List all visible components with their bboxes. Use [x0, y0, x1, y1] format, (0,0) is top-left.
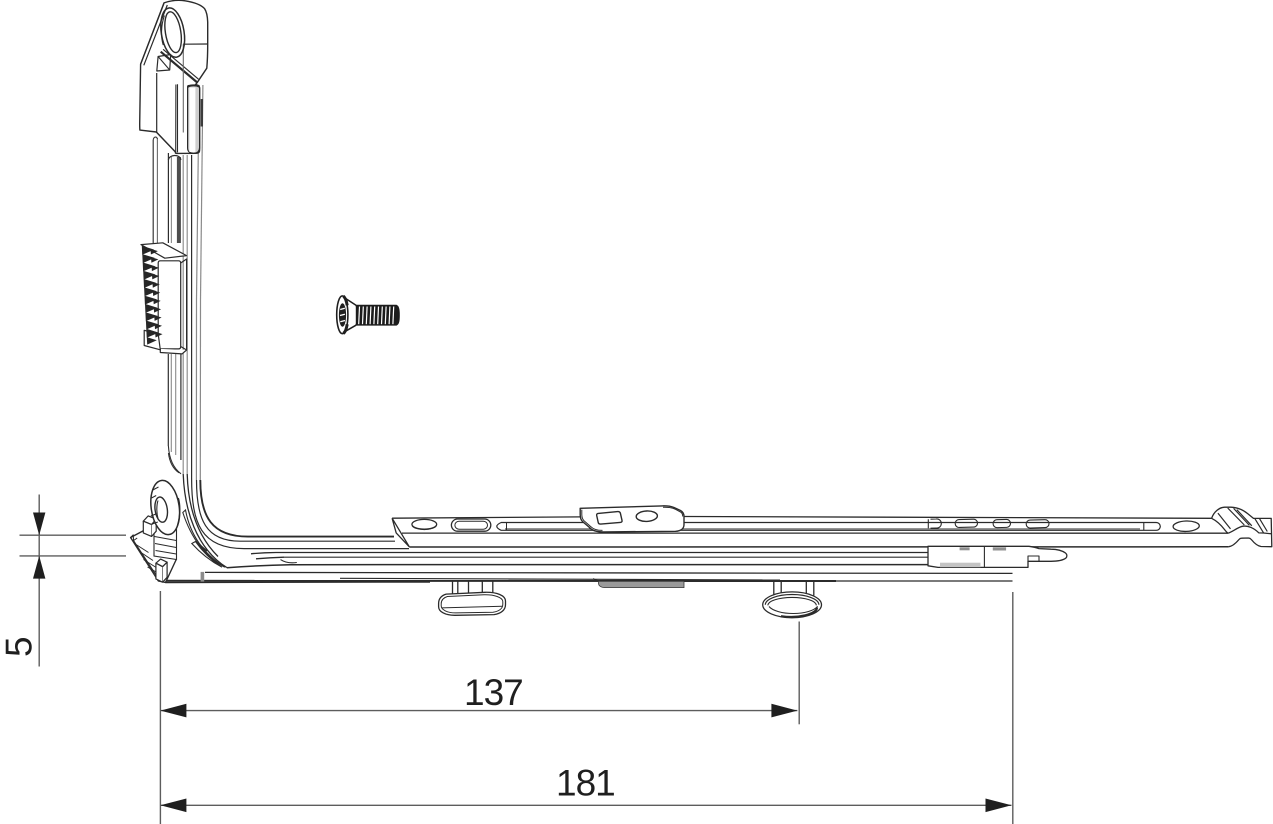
svg-text:137: 137	[464, 672, 523, 713]
svg-text:5: 5	[0, 636, 40, 657]
svg-text:181: 181	[556, 763, 615, 804]
